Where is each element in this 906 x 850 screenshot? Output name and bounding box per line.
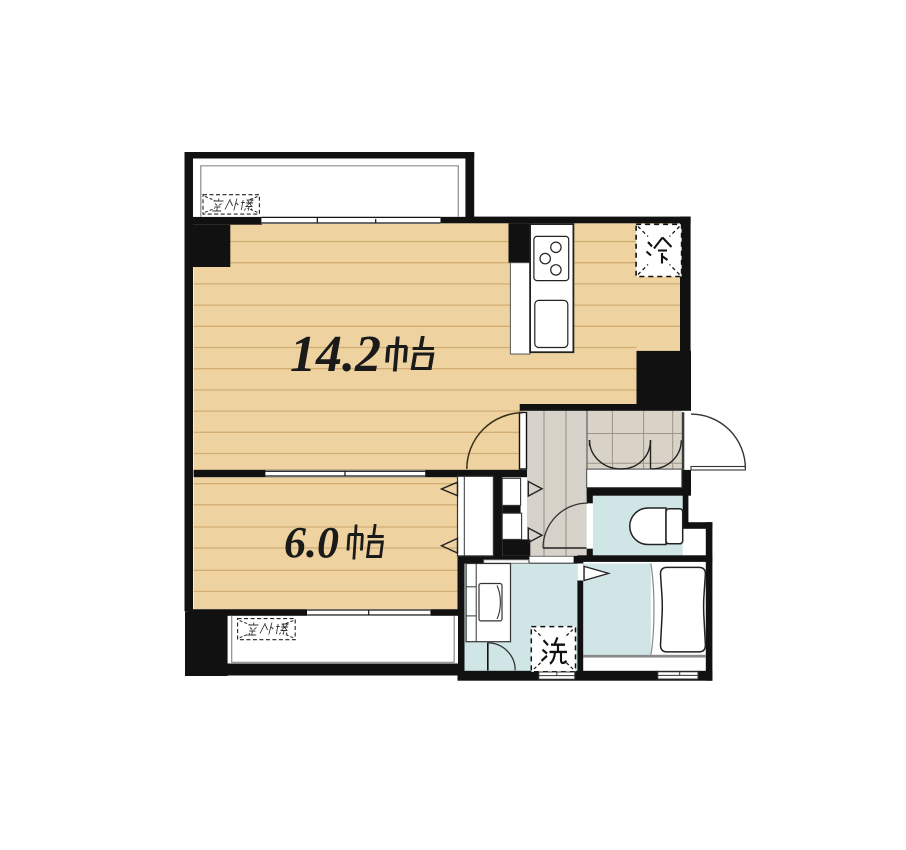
svg-text:6.0: 6.0 <box>284 518 339 567</box>
svg-text:14.2: 14.2 <box>290 326 381 383</box>
